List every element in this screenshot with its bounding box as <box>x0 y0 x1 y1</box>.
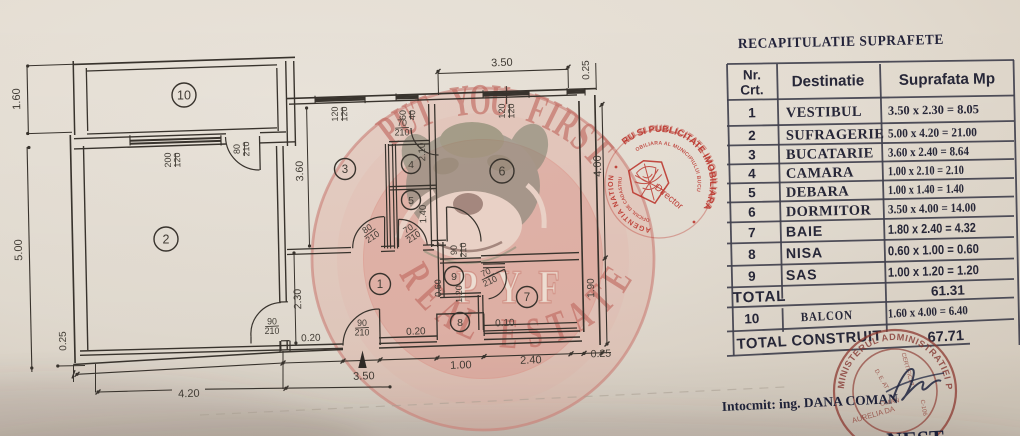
svg-text:6: 6 <box>499 165 506 179</box>
svg-text:61.31: 61.31 <box>931 283 966 299</box>
svg-text:0.25: 0.25 <box>590 348 611 361</box>
svg-text:1.90: 1.90 <box>586 278 597 298</box>
svg-text:3: 3 <box>748 147 756 162</box>
svg-text:Suprafata Mp: Suprafata Mp <box>899 70 995 89</box>
svg-text:1: 1 <box>748 105 756 120</box>
svg-text:Destinatie: Destinatie <box>792 72 865 90</box>
svg-text:5: 5 <box>408 195 414 207</box>
svg-text:1.60: 1.60 <box>11 88 23 110</box>
svg-text:90: 90 <box>357 318 367 328</box>
svg-text:210: 210 <box>265 326 280 336</box>
svg-text:120: 120 <box>339 106 349 121</box>
svg-text:3.50 x 4.00 = 14.00: 3.50 x 4.00 = 14.00 <box>888 200 976 216</box>
svg-text:4: 4 <box>408 159 414 171</box>
svg-text:8: 8 <box>748 247 756 262</box>
svg-text:0.60 x 1.00 = 0.60: 0.60 x 1.00 = 0.60 <box>888 241 979 258</box>
svg-text:NISA: NISA <box>786 245 824 262</box>
svg-text:3.60: 3.60 <box>294 161 306 182</box>
svg-text:1.40: 1.40 <box>418 205 429 224</box>
svg-text:8: 8 <box>457 317 463 329</box>
svg-text:4.20: 4.20 <box>178 388 200 401</box>
svg-text:70: 70 <box>397 118 407 128</box>
svg-text:6: 6 <box>748 205 756 220</box>
svg-text:1.00 x 1.40 = 1.40: 1.00 x 1.40 = 1.40 <box>888 182 964 198</box>
svg-text:0.25: 0.25 <box>58 331 69 351</box>
svg-text:0.60: 0.60 <box>433 279 443 297</box>
svg-text:9: 9 <box>748 269 756 284</box>
svg-text:Nr.: Nr. <box>743 67 761 82</box>
svg-text:90: 90 <box>267 316 277 326</box>
svg-text:1.00: 1.00 <box>450 359 472 372</box>
svg-text:210: 210 <box>241 141 251 156</box>
svg-text:2.10: 2.10 <box>417 143 428 162</box>
svg-text:CAMARA: CAMARA <box>786 165 854 182</box>
svg-text:Y: Y <box>497 262 522 315</box>
svg-text:10: 10 <box>177 89 191 103</box>
svg-text:7: 7 <box>524 292 530 304</box>
svg-text:BAIE: BAIE <box>786 224 823 241</box>
svg-text:210: 210 <box>395 128 410 138</box>
svg-text:0.10: 0.10 <box>495 318 515 330</box>
svg-text:.: . <box>790 428 797 436</box>
svg-text:0.20: 0.20 <box>301 333 321 345</box>
svg-text:5.00 x 4.20 = 21.00: 5.00 x 4.20 = 21.00 <box>888 125 977 140</box>
svg-text:3.50: 3.50 <box>353 370 375 383</box>
svg-text:0.25: 0.25 <box>581 60 592 80</box>
svg-text:1.80 x 2.40 = 4.32: 1.80 x 2.40 = 4.32 <box>888 220 976 237</box>
svg-text:BALCON: BALCON <box>801 308 854 324</box>
svg-text:2.40: 2.40 <box>520 354 542 367</box>
svg-text:1.20: 1.20 <box>454 285 464 303</box>
svg-text:4.00: 4.00 <box>592 155 604 177</box>
svg-text:120: 120 <box>172 152 182 167</box>
svg-text:Crt.: Crt. <box>740 82 763 97</box>
svg-text:210: 210 <box>355 328 370 338</box>
svg-text:2: 2 <box>163 233 170 247</box>
svg-text:1.00 x 2.10 = 2.10: 1.00 x 2.10 = 2.10 <box>888 163 964 178</box>
svg-text:4: 4 <box>748 166 756 181</box>
svg-text:1: 1 <box>377 279 383 291</box>
svg-text:0.20: 0.20 <box>406 326 426 338</box>
svg-text:SUFRAGERIE: SUFRAGERIE <box>786 126 885 144</box>
svg-text:2.30: 2.30 <box>292 289 304 310</box>
svg-text:10: 10 <box>744 311 760 327</box>
svg-text:DORMITOR: DORMITOR <box>786 202 872 220</box>
svg-text:1.00 x 1.20 = 1.20: 1.00 x 1.20 = 1.20 <box>888 262 979 280</box>
svg-text:2: 2 <box>748 128 756 143</box>
svg-text:210: 210 <box>458 242 468 257</box>
svg-text:120: 120 <box>506 103 516 118</box>
svg-text:5.00: 5.00 <box>13 239 25 261</box>
svg-text:BUCATARIE: BUCATARIE <box>786 145 874 163</box>
svg-text:3.50: 3.50 <box>491 57 513 70</box>
svg-text:40: 40 <box>407 110 417 120</box>
svg-text:5: 5 <box>748 185 756 200</box>
svg-text:DEBARA: DEBARA <box>786 184 850 201</box>
svg-text:TOTAL: TOTAL <box>733 288 787 307</box>
svg-text:3: 3 <box>342 164 348 176</box>
svg-text:3.50 x 2.30 = 8.05: 3.50 x 2.30 = 8.05 <box>888 102 979 118</box>
svg-text:SAS: SAS <box>786 267 818 284</box>
svg-text:7: 7 <box>748 225 756 240</box>
svg-text:9: 9 <box>451 271 457 283</box>
svg-text:VESTIBUL: VESTIBUL <box>786 104 862 121</box>
svg-text:3.60 x 2.40 = 8.64: 3.60 x 2.40 = 8.64 <box>888 144 970 160</box>
